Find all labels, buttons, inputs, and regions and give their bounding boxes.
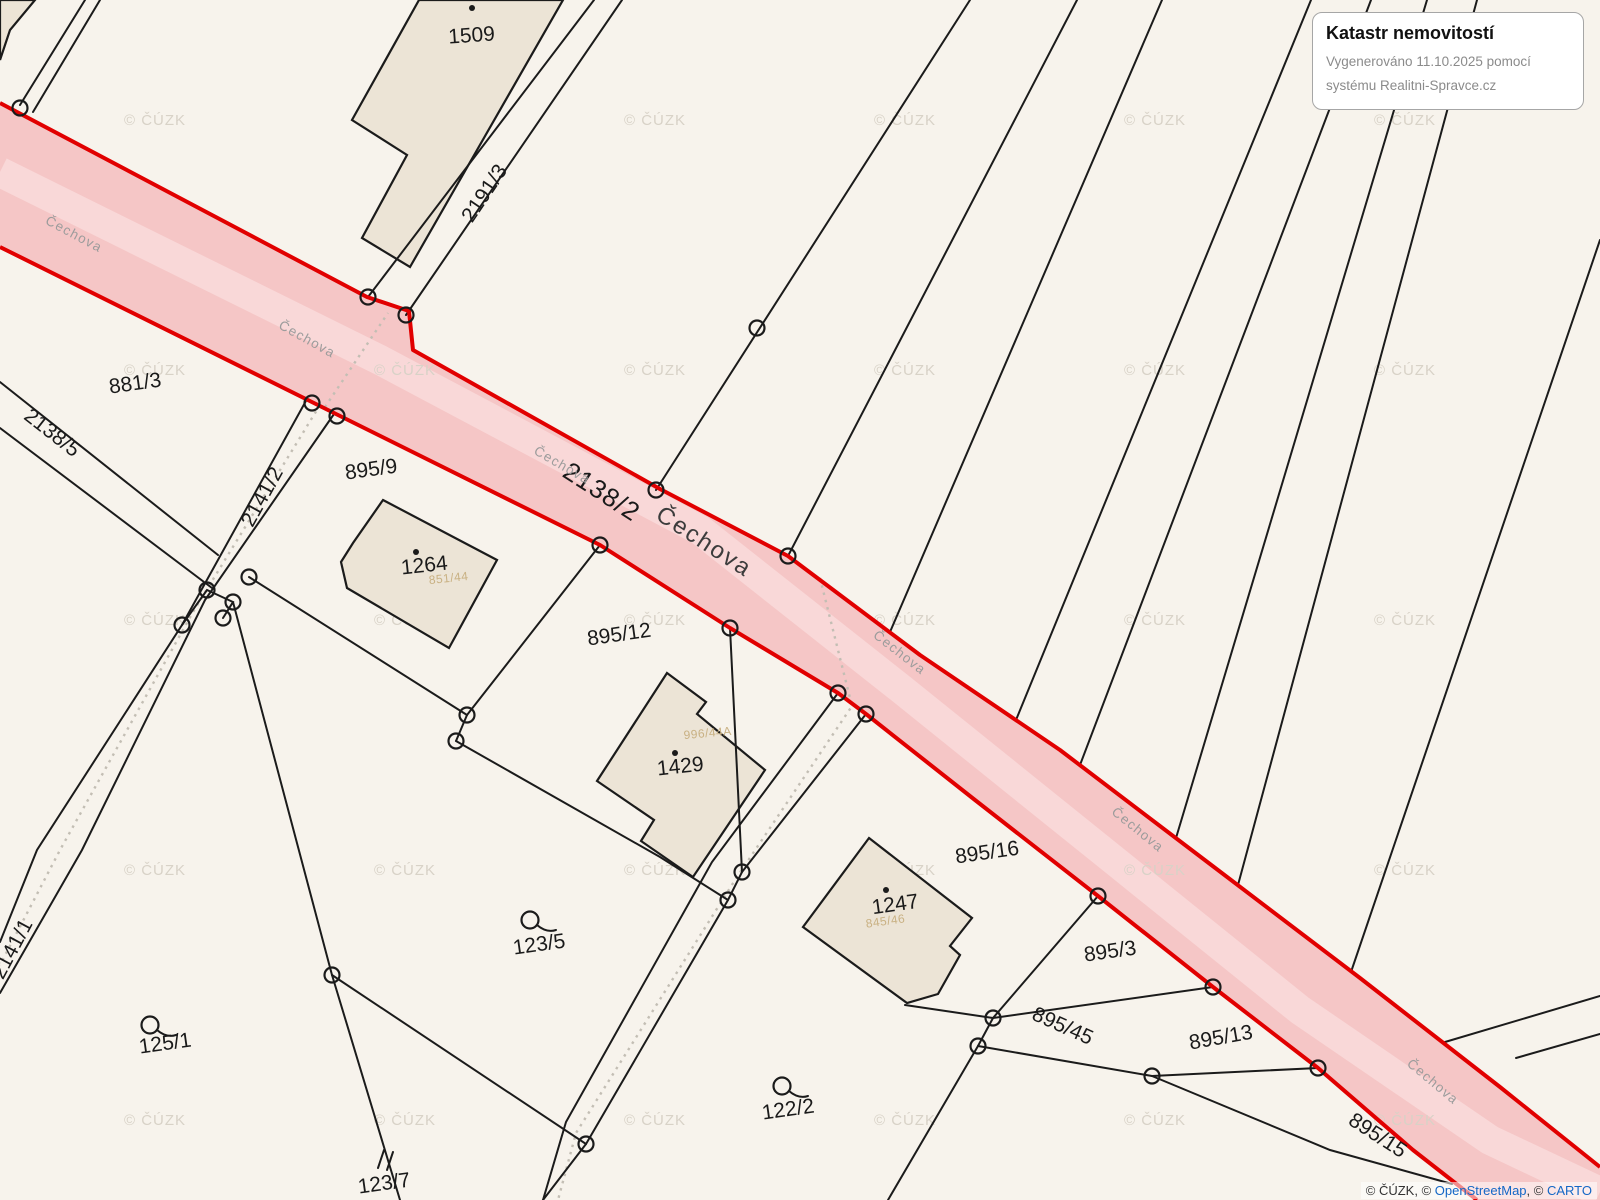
attribution-carto-link[interactable]: CARTO: [1547, 1183, 1592, 1198]
watermark-text: © ČÚZK: [374, 1112, 436, 1129]
watermark-text: © ČÚZK: [1124, 362, 1186, 379]
watermark-text: © ČÚZK: [874, 112, 936, 129]
info-box-title: Katastr nemovitostí: [1326, 23, 1570, 44]
watermark-text: © ČÚZK: [1124, 1112, 1186, 1129]
cadastral-map-stage: © ČÚZK© ČÚZK© ČÚZK© ČÚZK© ČÚZK© ČÚZK© ČÚ…: [0, 0, 1600, 1200]
attribution-czuk: © ČÚZK, ©: [1366, 1183, 1435, 1198]
watermark-text: © ČÚZK: [1374, 112, 1436, 129]
watermark-text: © ČÚZK: [374, 862, 436, 879]
building-label: 1509: [447, 22, 495, 48]
info-box: Katastr nemovitostí Vygenerováno 11.10.2…: [1312, 12, 1584, 110]
watermark-text: © ČÚZK: [874, 1112, 936, 1129]
watermark-text: © ČÚZK: [124, 1112, 186, 1129]
watermark-text: © ČÚZK: [624, 362, 686, 379]
map-attribution: © ČÚZK, © OpenStreetMap, © CARTO: [1361, 1182, 1597, 1199]
building-label: 1429: [656, 753, 705, 781]
watermark-text: © ČÚZK: [874, 362, 936, 379]
watermark-text: © ČÚZK: [624, 112, 686, 129]
watermark-text: © ČÚZK: [124, 112, 186, 129]
watermark-text: © ČÚZK: [1374, 362, 1436, 379]
attribution-osm-link[interactable]: OpenStreetMap: [1435, 1183, 1527, 1198]
info-box-system-line: systému Realitni-Spravce.cz: [1326, 74, 1570, 98]
map-canvas[interactable]: © ČÚZK© ČÚZK© ČÚZK© ČÚZK© ČÚZK© ČÚZK© ČÚ…: [0, 0, 1600, 1200]
watermark-text: © ČÚZK: [374, 362, 436, 379]
attribution-separator: , ©: [1527, 1183, 1547, 1198]
watermark-text: © ČÚZK: [624, 1112, 686, 1129]
watermark-text: © ČÚZK: [1124, 862, 1186, 879]
watermark-text: © ČÚZK: [124, 862, 186, 879]
info-box-generated-line: Vygenerováno 11.10.2025 pomocí: [1326, 50, 1570, 74]
watermark-text: © ČÚZK: [1374, 612, 1436, 629]
watermark-text: © ČÚZK: [1124, 112, 1186, 129]
